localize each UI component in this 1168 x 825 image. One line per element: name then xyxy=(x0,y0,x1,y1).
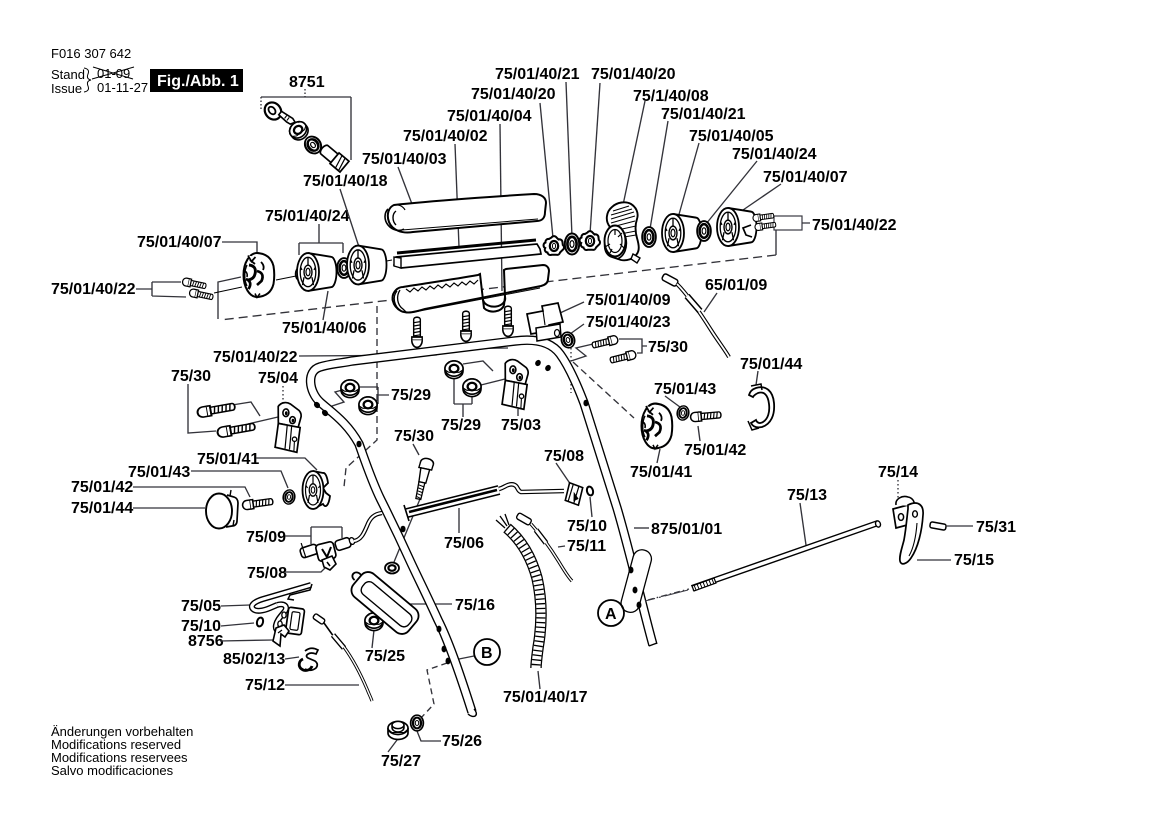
svg-text:75/14: 75/14 xyxy=(878,464,918,481)
svg-text:75/06: 75/06 xyxy=(444,535,484,552)
svg-text:A: A xyxy=(605,606,617,623)
svg-text:Issue: Issue xyxy=(51,81,82,96)
svg-text:75/29: 75/29 xyxy=(441,417,481,434)
svg-text:75/01/40/20: 75/01/40/20 xyxy=(471,86,556,103)
svg-text:75/01/40/04: 75/01/40/04 xyxy=(447,108,532,125)
svg-text:75/01/40/21: 75/01/40/21 xyxy=(661,106,746,123)
svg-text:75/10: 75/10 xyxy=(567,518,607,535)
svg-text:75/29: 75/29 xyxy=(391,387,431,404)
svg-text:75/09: 75/09 xyxy=(246,529,286,546)
svg-text:75/11: 75/11 xyxy=(567,538,606,555)
svg-text:75/01/42: 75/01/42 xyxy=(71,479,133,496)
svg-text:75/05: 75/05 xyxy=(181,598,221,615)
svg-text:75/13: 75/13 xyxy=(787,487,827,504)
svg-text:Fig./Abb. 1: Fig./Abb. 1 xyxy=(157,73,239,90)
svg-text:75/04: 75/04 xyxy=(258,370,298,387)
svg-text:75/01/40/22: 75/01/40/22 xyxy=(812,217,897,234)
svg-text:75/01/42: 75/01/42 xyxy=(684,442,746,459)
svg-text:75/03: 75/03 xyxy=(501,417,541,434)
svg-text:75/01/43: 75/01/43 xyxy=(654,381,716,398)
svg-text:75/01/41: 75/01/41 xyxy=(630,464,692,481)
svg-text:85/02/13: 85/02/13 xyxy=(223,651,285,668)
svg-text:75/01/40/22: 75/01/40/22 xyxy=(51,281,136,298)
svg-text:8756: 8756 xyxy=(188,633,224,650)
svg-text:75/01/40/23: 75/01/40/23 xyxy=(586,314,671,331)
svg-text:65/01/09: 65/01/09 xyxy=(705,277,767,294)
svg-text:75/01/40/24: 75/01/40/24 xyxy=(265,208,350,225)
svg-text:75/01/40/07: 75/01/40/07 xyxy=(137,234,222,251)
svg-text:75/01/44: 75/01/44 xyxy=(71,500,133,517)
svg-text:75/01/40/24: 75/01/40/24 xyxy=(732,146,817,163)
svg-text:75/15: 75/15 xyxy=(954,552,994,569)
svg-text:75/31: 75/31 xyxy=(976,519,1016,536)
svg-text:75/01/40/03: 75/01/40/03 xyxy=(362,151,447,168)
svg-text:75/01/40/07: 75/01/40/07 xyxy=(763,169,848,186)
svg-text:75/08: 75/08 xyxy=(247,565,287,582)
svg-text:75/16: 75/16 xyxy=(455,597,495,614)
svg-text:75/01/40/02: 75/01/40/02 xyxy=(403,128,488,145)
svg-text:75/30: 75/30 xyxy=(171,368,211,385)
svg-text:75/08: 75/08 xyxy=(544,448,584,465)
svg-text:75/01/41: 75/01/41 xyxy=(197,451,259,468)
svg-text:75/30: 75/30 xyxy=(648,339,688,356)
svg-text:75/01/44: 75/01/44 xyxy=(740,356,802,373)
svg-text:75/01/40/20: 75/01/40/20 xyxy=(591,66,676,83)
svg-text:75/30: 75/30 xyxy=(394,428,434,445)
svg-text:75/26: 75/26 xyxy=(442,733,482,750)
svg-text:75/01/40/05: 75/01/40/05 xyxy=(689,128,774,145)
svg-text:75/25: 75/25 xyxy=(365,648,405,665)
svg-text:75/01/40/17: 75/01/40/17 xyxy=(503,689,588,706)
svg-text:75/01/40/06: 75/01/40/06 xyxy=(282,320,367,337)
svg-text:75/01/40/09: 75/01/40/09 xyxy=(586,292,671,309)
svg-text:Salvo modificaciones: Salvo modificaciones xyxy=(51,763,174,778)
svg-text:75/12: 75/12 xyxy=(245,677,285,694)
svg-text:01-11-27: 01-11-27 xyxy=(97,80,148,95)
svg-text:75/27: 75/27 xyxy=(381,753,421,770)
svg-text:Stand: Stand xyxy=(51,67,85,82)
svg-text:8751: 8751 xyxy=(289,74,325,91)
svg-text:75/01/40/22: 75/01/40/22 xyxy=(213,349,298,366)
svg-text:F016 307 642: F016 307 642 xyxy=(51,46,131,61)
svg-text:875/01/01: 875/01/01 xyxy=(651,521,722,538)
svg-text:75/01/40/21: 75/01/40/21 xyxy=(495,66,580,83)
svg-text:B: B xyxy=(481,645,493,662)
svg-text:75/01/40/18: 75/01/40/18 xyxy=(303,173,388,190)
svg-text:75/01/43: 75/01/43 xyxy=(128,464,190,481)
